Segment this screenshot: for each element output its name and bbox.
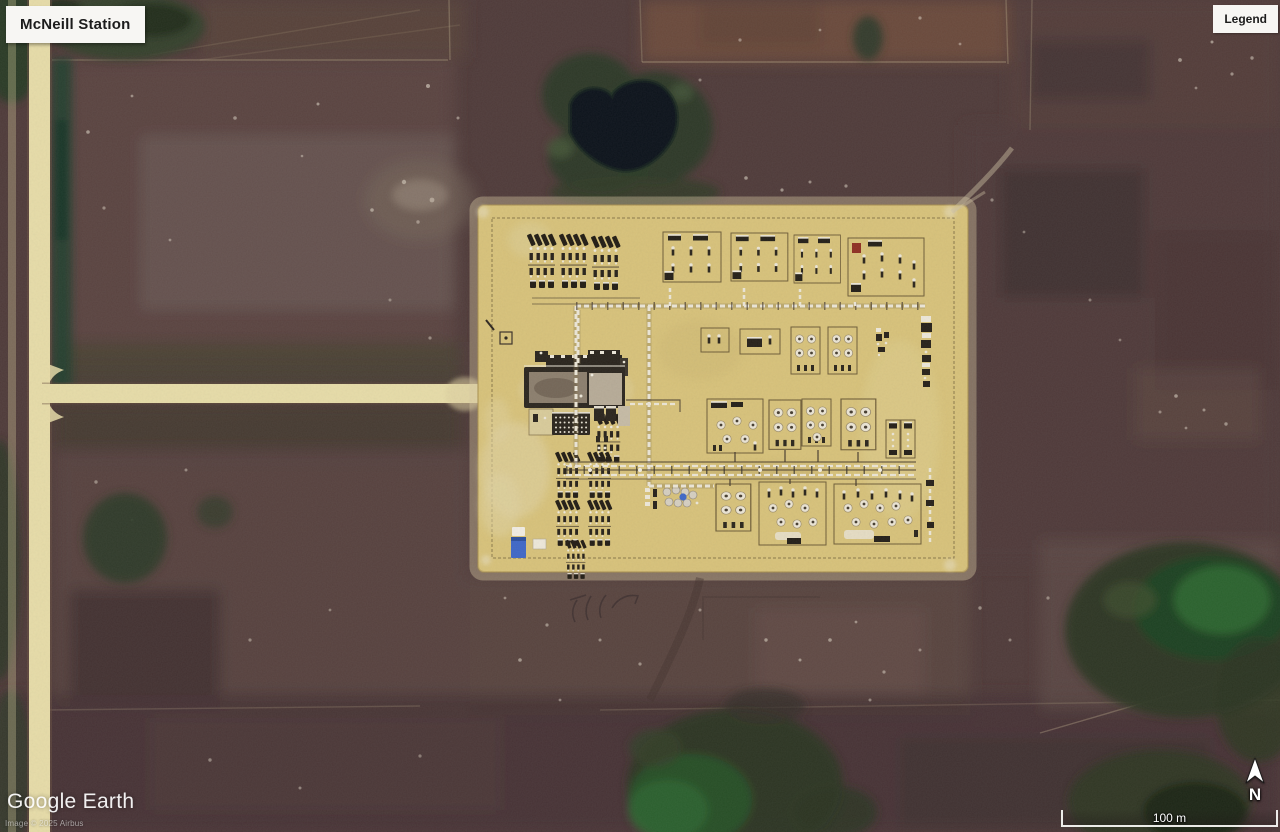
satellite-map[interactable] [0, 0, 1280, 832]
north-label: N [1249, 786, 1261, 803]
scale-bar-label: 100 m [1153, 811, 1186, 825]
google-earth-viewport: McNeill Station Legend Google Earth Imag… [0, 0, 1280, 832]
scale-bar: 100 m [1061, 810, 1278, 827]
legend-button[interactable]: Legend [1213, 5, 1278, 33]
station-label: McNeill Station [6, 6, 145, 43]
north-arrow-icon [1243, 757, 1267, 785]
image-grain [0, 0, 1280, 832]
compass[interactable]: N [1242, 757, 1268, 803]
imagery-attribution: Image © 2025 Airbus [5, 819, 84, 828]
google-earth-watermark: Google Earth [7, 790, 134, 814]
